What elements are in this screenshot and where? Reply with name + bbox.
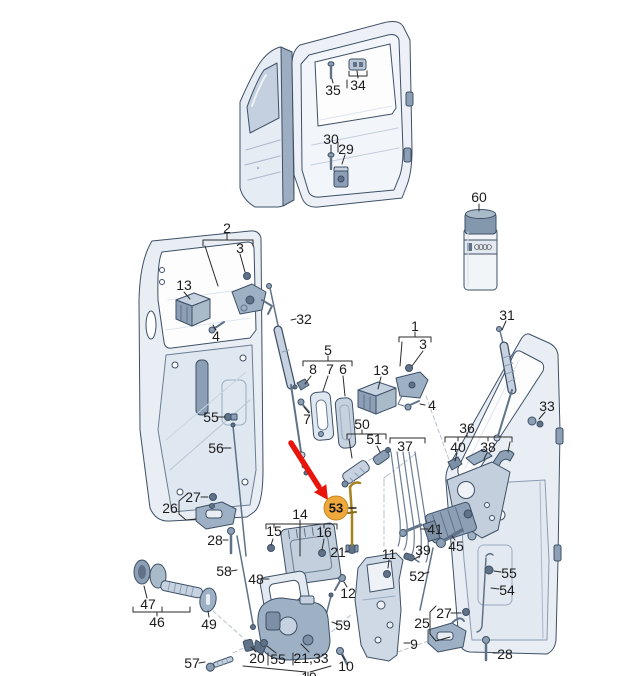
lubricant-can bbox=[464, 210, 497, 291]
gas-strut-32 bbox=[267, 284, 309, 476]
van-rear-view bbox=[240, 22, 413, 208]
highlighted-rod-53 bbox=[348, 483, 360, 546]
lock-cylinder-group bbox=[341, 448, 390, 488]
pointer-arrow bbox=[291, 443, 328, 500]
door-lock-unit bbox=[243, 596, 330, 660]
diagram-artwork bbox=[0, 0, 617, 676]
parts-diagram: 3534302960231332455565876713134313350513… bbox=[0, 0, 617, 676]
